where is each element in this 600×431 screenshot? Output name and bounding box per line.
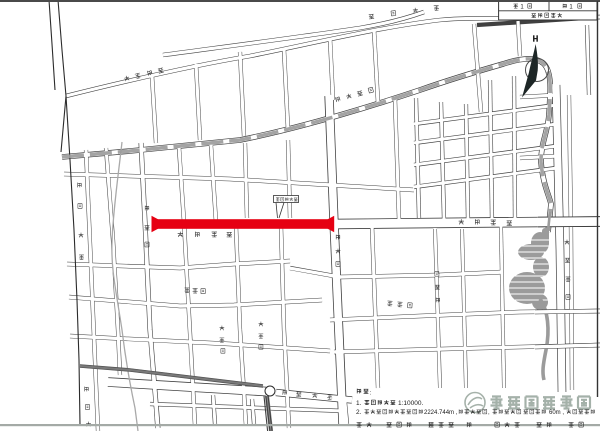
svg-text:1.: 1. [356,400,362,407]
svg-text:60m ,: 60m , [549,410,564,416]
svg-text:2224.744m ,: 2224.744m , [424,410,458,416]
svg-text:1:10000.: 1:10000. [398,400,423,407]
svg-text:2.: 2. [356,409,362,416]
